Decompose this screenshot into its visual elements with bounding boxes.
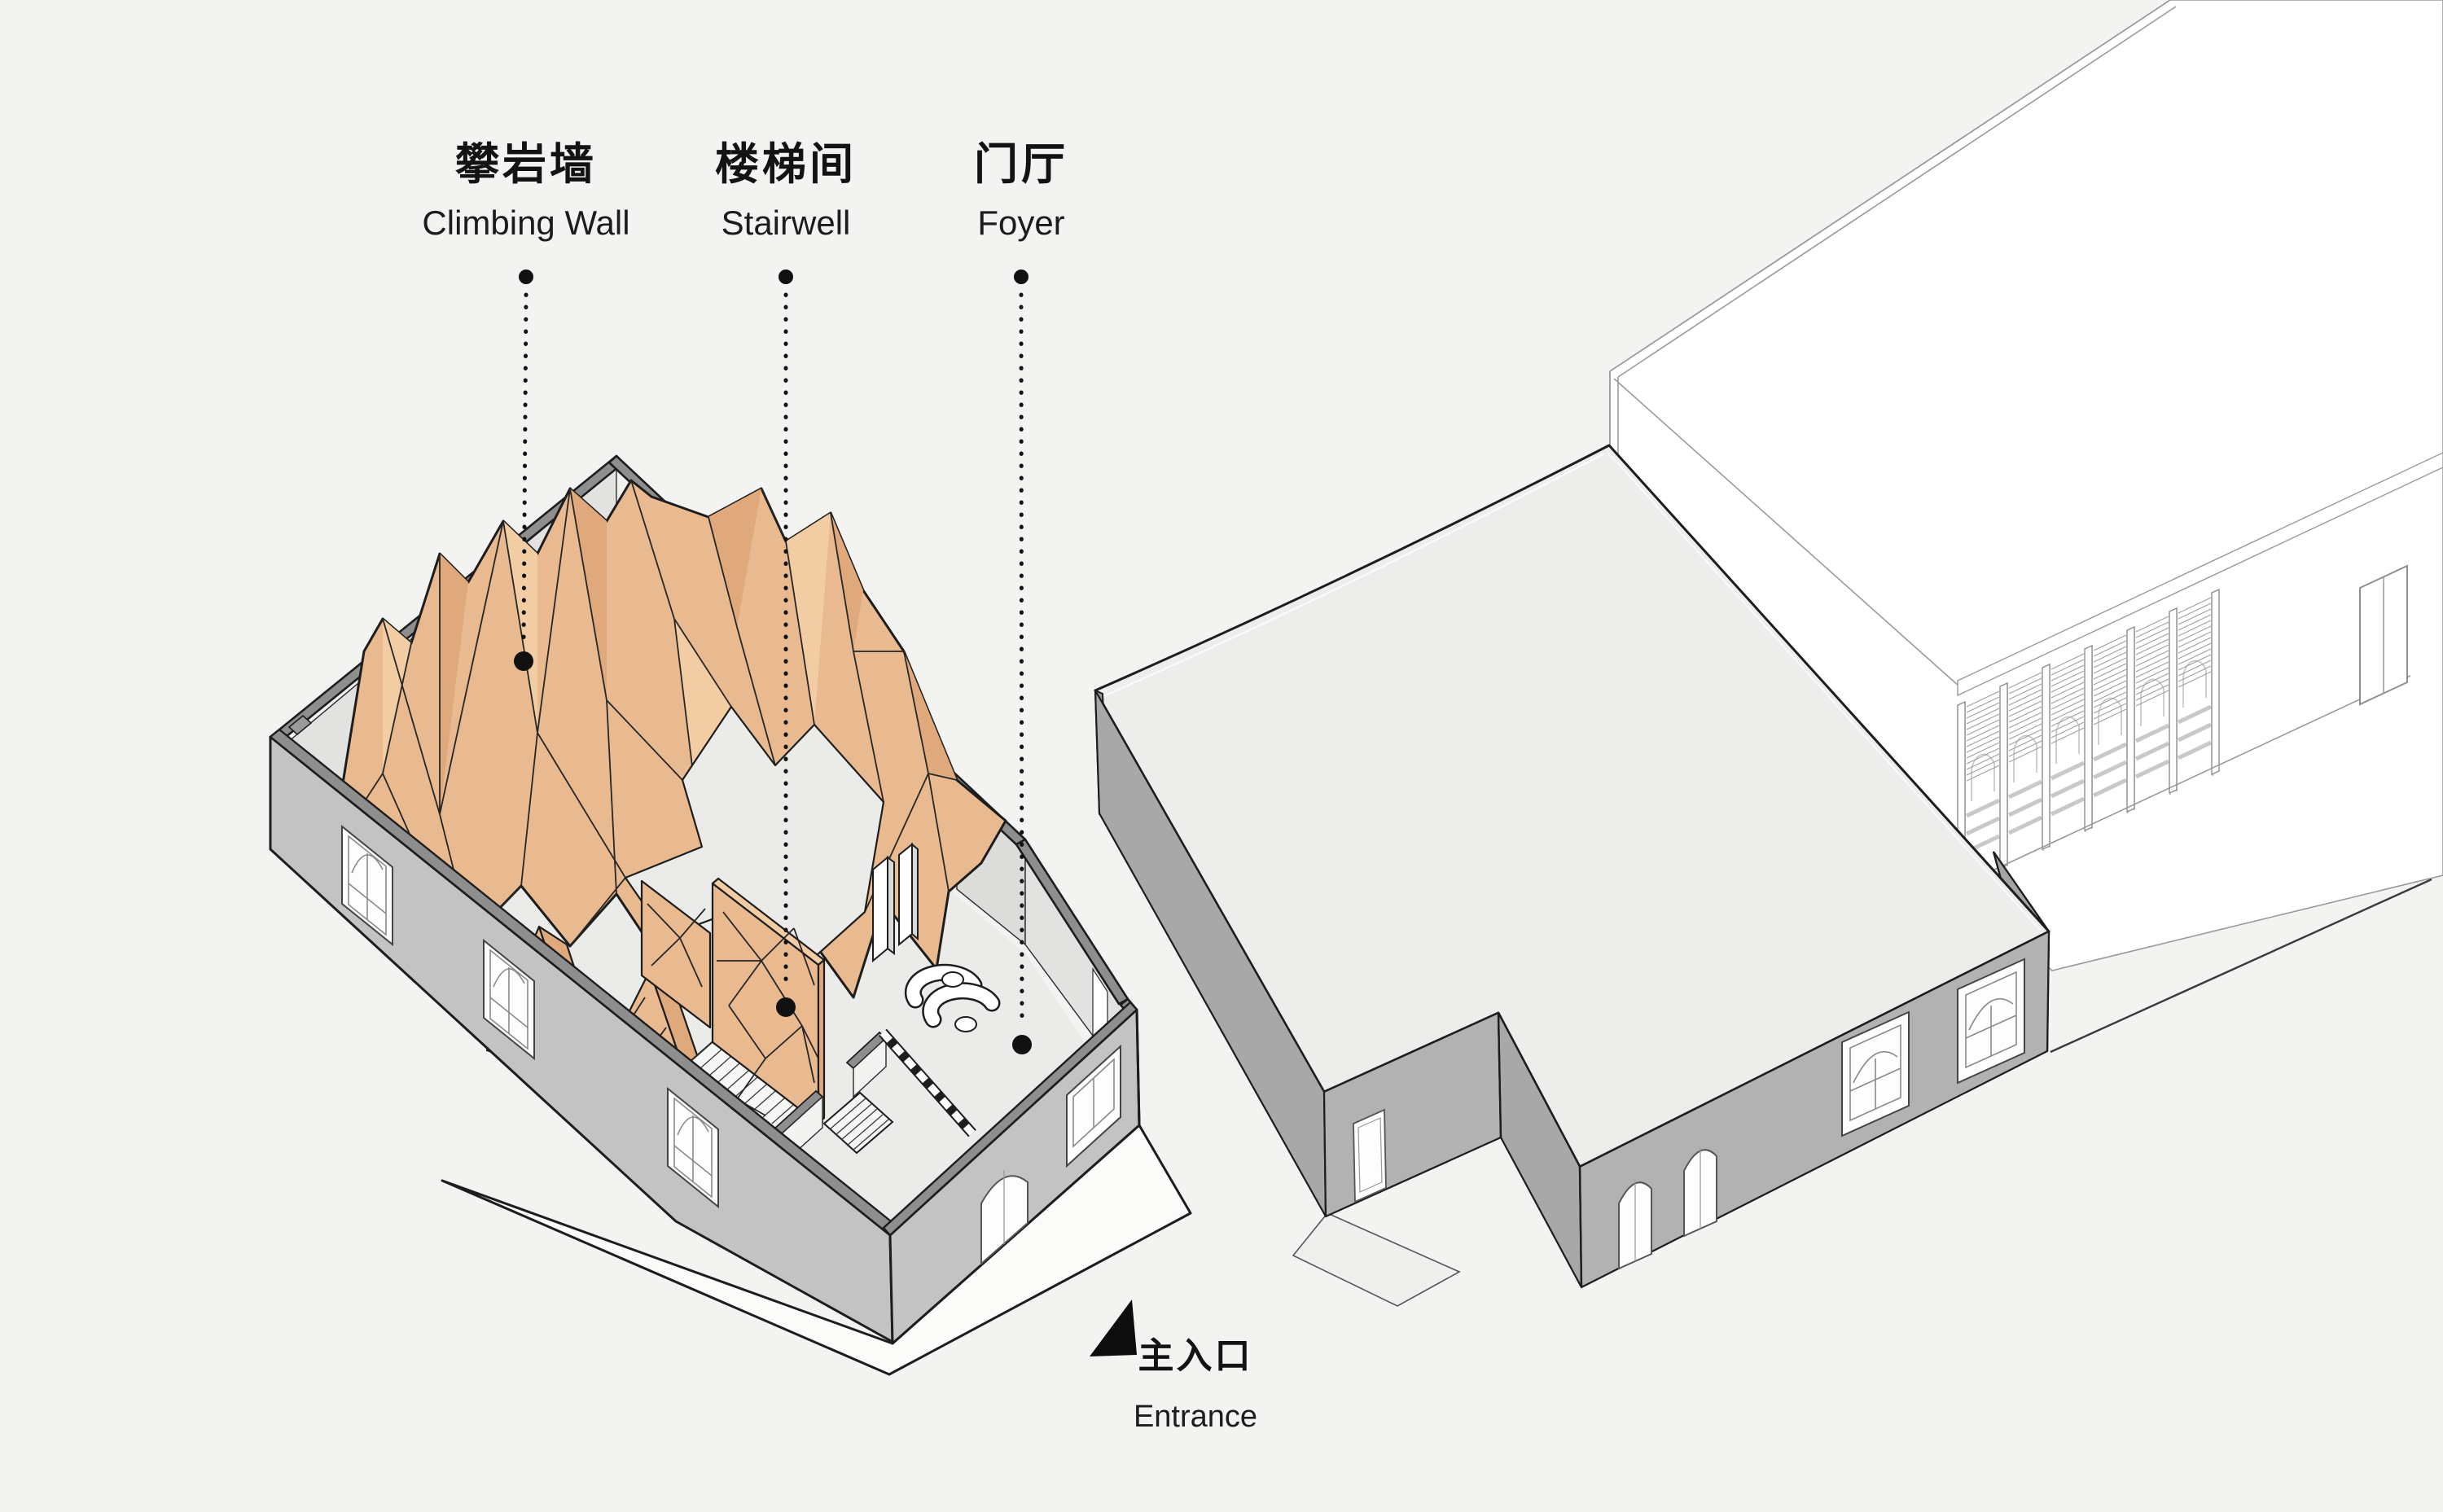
target-dot-icon	[514, 651, 533, 671]
cutaway-building	[270, 456, 1139, 1343]
entrance-arrow-icon	[1090, 1299, 1137, 1356]
entrance-marker: 主入口 Entrance	[1090, 1299, 1257, 1434]
callout-en-label: Foyer	[977, 204, 1064, 242]
callout-en-label: Stairwell	[721, 204, 851, 242]
leader-line	[1021, 295, 1022, 1026]
entrance-en-label: Entrance	[1134, 1400, 1257, 1434]
gray-building-door	[1353, 1110, 1386, 1202]
callout-zh-label: 楼梯间	[715, 140, 857, 189]
callout-zh-label: 攀岩墙	[455, 140, 597, 189]
white-building-door	[2360, 566, 2407, 704]
entrance-zh-label: 主入口	[1138, 1336, 1253, 1376]
anchor-dot-icon	[1014, 270, 1029, 284]
callout-en-label: Climbing Wall	[422, 204, 629, 242]
walkway	[1293, 1213, 1459, 1306]
callout-zh-label: 门厅	[974, 140, 1068, 189]
target-dot-icon	[776, 997, 796, 1017]
anchor-dot-icon	[779, 270, 793, 284]
axonometric-diagram: 攀岩墙 Climbing Wall 楼梯间 Stairwell 门厅 Foyer…	[0, 0, 2443, 1512]
target-dot-icon	[1012, 1035, 1032, 1054]
diagram-canvas: 攀岩墙 Climbing Wall 楼梯间 Stairwell 门厅 Foyer…	[0, 0, 2443, 1512]
anchor-dot-icon	[519, 270, 533, 284]
